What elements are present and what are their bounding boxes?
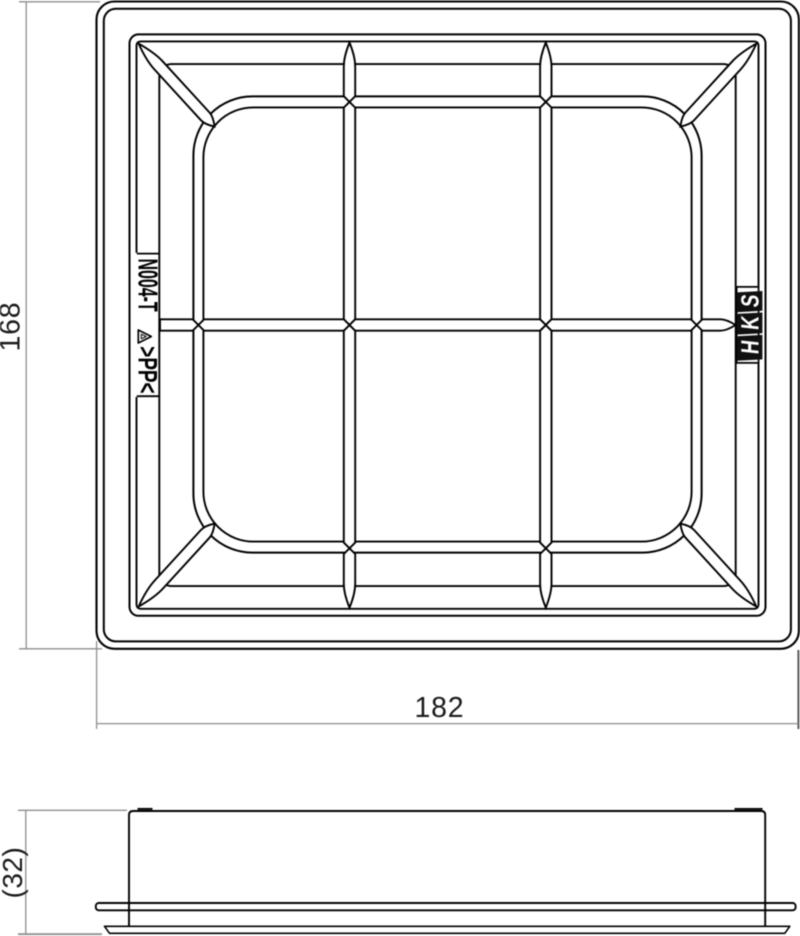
svg-text:>PP<: >PP< — [133, 346, 163, 393]
svg-text:168: 168 — [0, 302, 27, 352]
svg-text:N004-T: N004-T — [132, 259, 164, 312]
svg-text:182: 182 — [415, 692, 465, 724]
svg-text:(32): (32) — [0, 847, 28, 899]
